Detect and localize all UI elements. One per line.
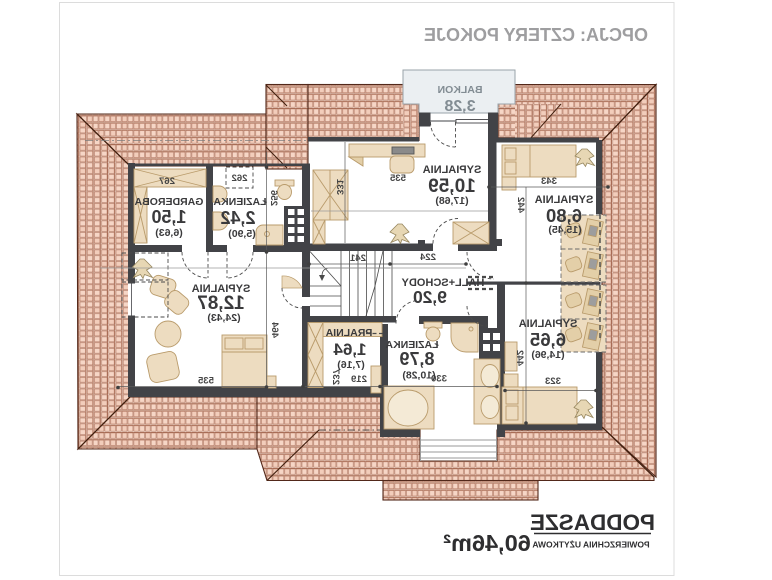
svg-text:(6,63): (6,63) xyxy=(155,227,182,239)
svg-text:224: 224 xyxy=(419,252,436,263)
svg-text:(14,96): (14,96) xyxy=(531,349,564,361)
svg-text:(7,16): (7,16) xyxy=(337,359,364,371)
svg-text:8,79: 8,79 xyxy=(399,349,434,369)
svg-text:(10,28): (10,28) xyxy=(402,370,435,382)
svg-text:SYPIALNIA: SYPIALNIA xyxy=(423,164,482,176)
svg-text:442: 442 xyxy=(515,197,526,213)
svg-text:(24,43): (24,43) xyxy=(207,312,240,324)
svg-text:10,59: 10,59 xyxy=(428,176,476,197)
svg-text:256: 256 xyxy=(268,190,279,206)
svg-text:(15,45): (15,45) xyxy=(548,224,581,236)
svg-text:OPCJA: CZTERY POKOJE: OPCJA: CZTERY POKOJE xyxy=(424,25,648,45)
svg-text:(17,68): (17,68) xyxy=(435,195,468,207)
svg-text:219: 219 xyxy=(351,374,367,385)
svg-text:3,28: 3,28 xyxy=(444,98,475,115)
svg-text:323: 323 xyxy=(545,376,561,387)
svg-text:9,20: 9,20 xyxy=(413,287,447,307)
svg-text:1,64: 1,64 xyxy=(333,340,367,359)
svg-text:1,50: 1,50 xyxy=(151,207,186,227)
svg-text:267: 267 xyxy=(159,176,175,187)
svg-text:237: 237 xyxy=(330,369,341,385)
svg-text:262: 262 xyxy=(231,173,247,184)
svg-text:343: 343 xyxy=(541,176,557,187)
svg-text:PODDASZE: PODDASZE xyxy=(530,510,655,535)
svg-text:331: 331 xyxy=(334,178,345,195)
svg-text:535: 535 xyxy=(197,376,214,387)
svg-text:464: 464 xyxy=(269,321,280,338)
svg-text:2,42: 2,42 xyxy=(220,208,255,228)
svg-text:241: 241 xyxy=(349,253,366,264)
svg-text:ŁAZIENKA: ŁAZIENKA xyxy=(213,196,266,208)
svg-text:12,87: 12,87 xyxy=(197,293,245,314)
svg-text:6,80: 6,80 xyxy=(546,205,582,226)
svg-text:(5,90): (5,90) xyxy=(228,228,255,240)
svg-text:POWIERZCHNIA UŻYTKOWA: POWIERZCHNIA UŻYTKOWA xyxy=(532,540,649,550)
svg-text:535: 535 xyxy=(389,173,406,184)
svg-text:PRALNIA: PRALNIA xyxy=(325,327,372,339)
svg-text:6,65: 6,65 xyxy=(530,329,566,350)
svg-text:60,46m²: 60,46m² xyxy=(443,530,531,556)
svg-text:BALKON: BALKON xyxy=(438,84,483,96)
svg-text:442: 442 xyxy=(514,350,525,366)
